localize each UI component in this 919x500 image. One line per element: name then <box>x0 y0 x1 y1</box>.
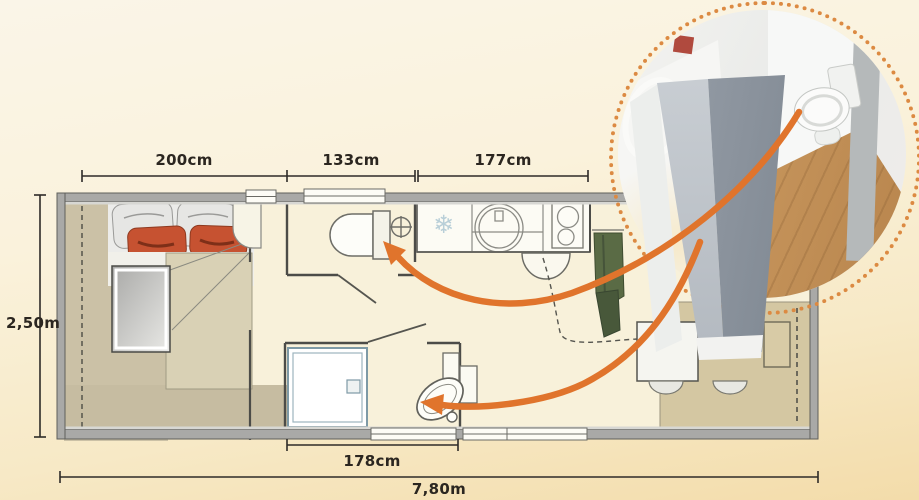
arrows-svg <box>0 0 919 500</box>
floorplan-page: ❄ 200cm 133cm 177cm 2,50m 178cm 7,80m <box>0 0 919 500</box>
arrow-to-toilet <box>398 112 799 304</box>
arrow-to-washbasin <box>442 242 700 407</box>
arrowhead-washbasin <box>420 394 444 415</box>
